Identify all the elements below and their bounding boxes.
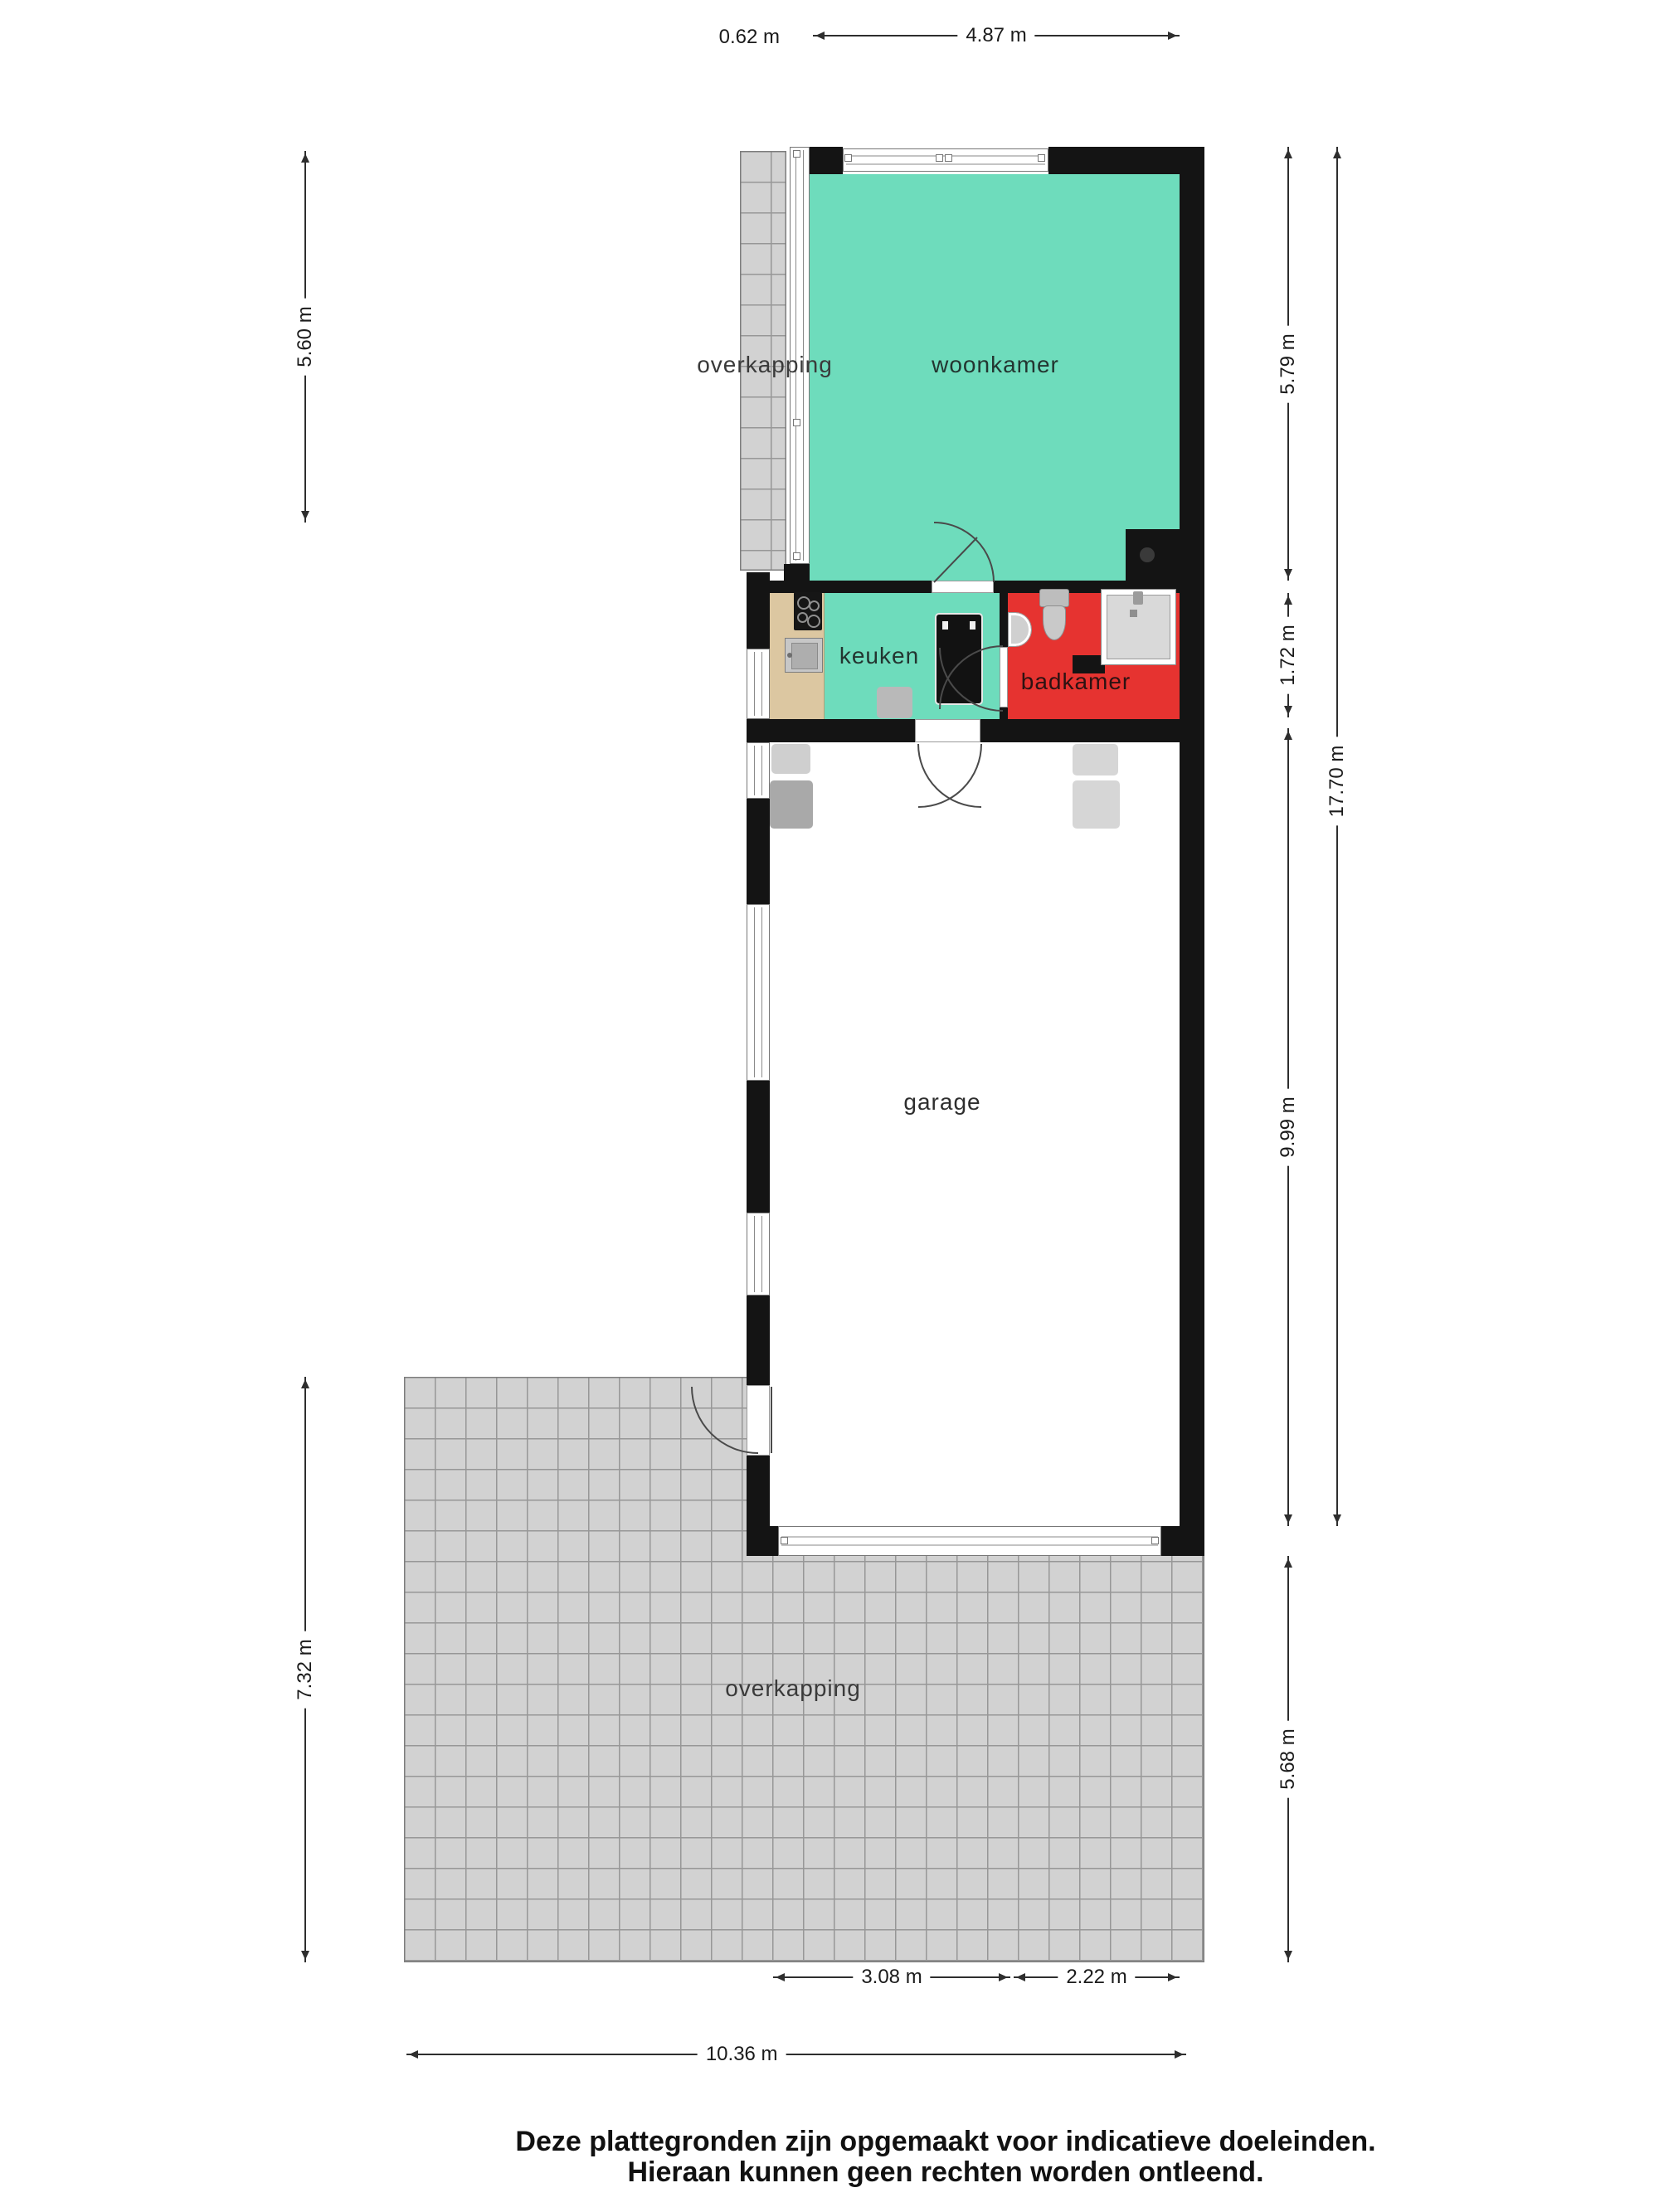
garage-door-end [1151,1537,1159,1544]
window-pane [945,154,952,162]
garage-door-panel [781,1537,1158,1546]
sliding-door-handle [793,150,800,158]
wall-garage-top-b [980,719,1180,742]
garage-appliance-left-2 [770,780,813,829]
kitchen-appliance [877,687,912,718]
garage-appliance-right-2 [1073,780,1120,829]
garage-door [778,1526,1161,1556]
label-badkamer: badkamer [1021,668,1131,695]
dim-top-width: 4.87 m [813,35,1180,36]
garage-appliance-right-1 [1073,744,1118,775]
dim-right-total: 17.70 m [1336,147,1338,1526]
dim-right-keuken-badkamer: 1.72 m [1287,593,1289,717]
dim-right-overkapping: 5.68 m [1287,1556,1289,1962]
window-pane [844,154,852,162]
keuken-left-window [747,649,770,719]
sliding-door-handle [793,419,800,426]
cooktop [794,592,822,630]
window-glass [754,907,762,1077]
fireplace-flue-dot [1140,547,1155,562]
dim-bottom-garage-door: 3.08 m [773,1976,1010,1978]
garage-left-window-3 [747,1213,770,1296]
dim-left-overkapping-top: 5.60 m [304,151,306,523]
wall-woonkamer-bottom-a [770,581,932,593]
dim-right-garage: 9.99 m [1287,728,1289,1526]
dim-right-woonkamer: 5.79 m [1287,147,1289,581]
dim-bottom-right-segment: 2.22 m [1014,1976,1180,1978]
window-glass [754,746,762,795]
kitchen-cabinet [935,613,983,705]
floor-plan: overkapping woonkamer keuken badkamer ga… [0,0,1659,2212]
wall-keuken-badkamer-a [1000,593,1008,647]
toilet-tank [1039,589,1069,607]
doorway-badkamer [1000,647,1008,707]
wall-garage-left-1 [747,799,770,904]
room-garage [770,742,1180,1526]
garage-appliance-left-1 [771,744,810,774]
wall-garage-top-a [747,719,915,742]
garage-left-window-2 [747,904,770,1081]
wall-garage-left-3 [747,1296,770,1385]
label-keuken: keuken [839,643,919,669]
label-woonkamer: woonkamer [932,352,1059,378]
wall-right [1180,147,1204,1556]
window-pane [936,154,943,162]
label-garage: garage [903,1089,980,1116]
dim-top-offset: 0.62 m [713,26,780,49]
doorway-woonkamer-keuken [932,581,994,593]
shower [1101,589,1176,665]
shower-faucet-icon [1133,591,1143,605]
wall-garage-bottom-right-corner [1161,1526,1204,1556]
shower-drain [1130,610,1137,617]
wall-garage-bottom-left-corner [747,1526,778,1556]
label-overkapping-top: overkapping [697,352,833,378]
garage-door-end [781,1537,788,1544]
label-overkapping-bottom: overkapping [725,1675,861,1702]
garage-left-window-1 [747,742,770,799]
dim-left-overkapping-bottom: 7.32 m [304,1377,306,1962]
disclaimer-line-2: Hieraan kunnen geen rechten worden ontle… [506,2156,1385,2189]
window-glass [754,652,762,716]
disclaimer-line-1: Deze plattegronden zijn opgemaakt voor i… [506,2126,1385,2158]
window-glass [754,1216,762,1292]
window-pane [1038,154,1045,162]
doorway-keuken-garage [915,719,980,742]
doorway-garage-side [747,1385,770,1456]
wall-keuken-left [747,572,770,649]
kitchen-sink [785,638,823,673]
wall-garage-left-2 [747,1081,770,1213]
sliding-door-handle [793,552,800,560]
dim-bottom-total: 10.36 m [406,2054,1186,2055]
wall-keuken-badkamer-b [1000,707,1008,719]
